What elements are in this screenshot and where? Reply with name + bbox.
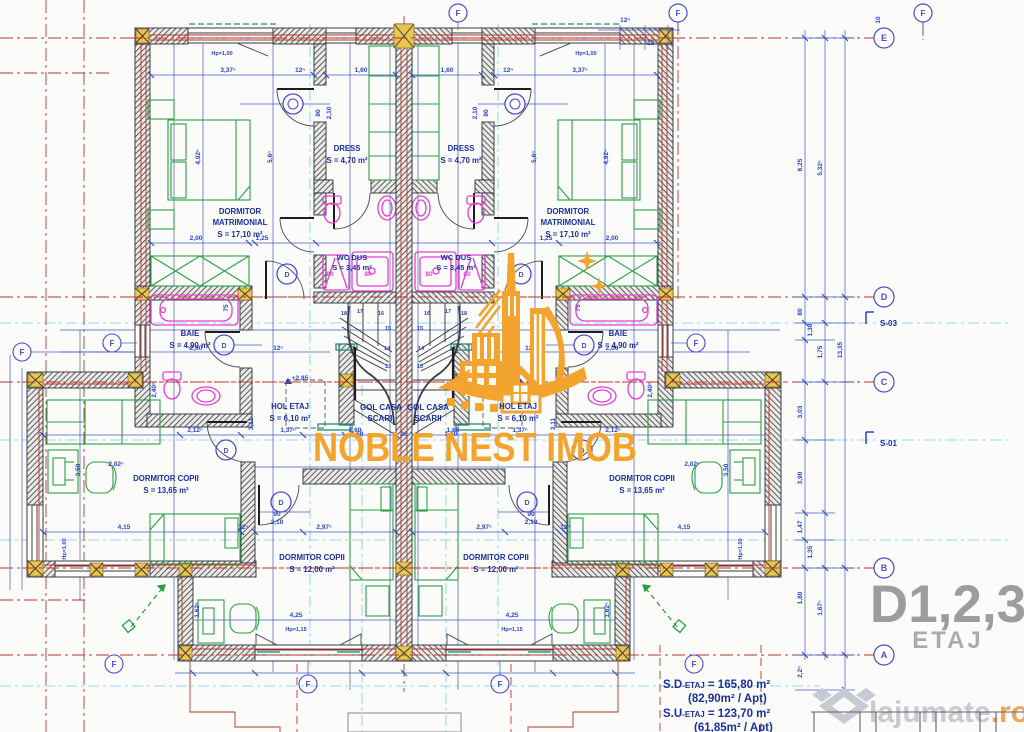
svg-text:1,62ⁿ: 1,62ⁿ — [194, 602, 201, 618]
svg-text:80: 80 — [326, 271, 334, 278]
svg-text:S.D-ETAJ = 165,80 m²: S.D-ETAJ = 165,80 m² — [663, 679, 770, 691]
svg-text:MATRIMONIAL: MATRIMONIAL — [213, 218, 268, 227]
svg-text:DORMITOR COPII: DORMITOR COPII — [279, 553, 345, 562]
svg-text:12ⁿ: 12ⁿ — [503, 67, 513, 74]
svg-text:S = 4,90 m²: S = 4,90 m² — [598, 341, 639, 350]
svg-text:15: 15 — [385, 326, 391, 332]
svg-text:13: 13 — [417, 364, 423, 370]
svg-text:E: E — [881, 33, 887, 43]
svg-text:1,60: 1,60 — [441, 67, 454, 74]
svg-text:BAIE: BAIE — [609, 329, 628, 338]
svg-text:C: C — [881, 377, 888, 387]
svg-text:DRESS: DRESS — [448, 144, 475, 153]
svg-text:S = 3,45 m²: S = 3,45 m² — [332, 263, 372, 272]
svg-text:S = 17,10 m²: S = 17,10 m² — [217, 230, 263, 239]
svg-text:D1,2,3: D1,2,3 — [870, 575, 1024, 634]
svg-text:D: D — [881, 292, 888, 302]
svg-text:S.U-ETAJ = 123,70 m²: S.U-ETAJ = 123,70 m² — [663, 708, 770, 720]
svg-text:(61,85m² / Apt): (61,85m² / Apt) — [694, 722, 773, 732]
svg-text:F: F — [112, 660, 117, 669]
svg-text:17: 17 — [357, 309, 363, 315]
svg-text:D: D — [223, 448, 228, 455]
svg-text:S = 4,70 m²: S = 4,70 m² — [441, 156, 482, 165]
svg-text:F: F — [498, 680, 503, 689]
svg-text:4,92ⁿ: 4,92ⁿ — [603, 149, 610, 165]
svg-text:F: F — [456, 9, 461, 18]
svg-text:3,11: 3,11 — [248, 417, 255, 430]
svg-text:1,38: 1,38 — [807, 323, 814, 336]
svg-text:NOBLE NEST IMOB: NOBLE NEST IMOB — [313, 424, 637, 470]
svg-text:12ⁿ: 12ⁿ — [560, 524, 570, 531]
svg-text:17: 17 — [445, 309, 451, 315]
svg-text:13: 13 — [385, 364, 391, 370]
svg-text:1,47: 1,47 — [797, 520, 804, 533]
svg-text:1,35: 1,35 — [807, 545, 814, 558]
svg-text:D: D — [221, 343, 226, 350]
svg-text:S = 13,65 m²: S = 13,65 m² — [619, 486, 665, 495]
svg-text:75: 75 — [223, 304, 230, 312]
svg-text:DORMITOR COPII: DORMITOR COPII — [133, 474, 199, 483]
svg-text:2,40ⁿ: 2,40ⁿ — [151, 382, 158, 398]
svg-text:2,10: 2,10 — [271, 519, 284, 526]
svg-text:5,6ⁿ: 5,6ⁿ — [531, 151, 538, 163]
svg-text:Hp=1,00: Hp=1,00 — [62, 538, 68, 559]
svg-text:Hp=1,00: Hp=1,00 — [738, 538, 744, 559]
svg-text:2,02ⁿ: 2,02ⁿ — [108, 461, 124, 468]
svg-text:D: D — [278, 500, 283, 507]
svg-text:1,60: 1,60 — [355, 67, 368, 74]
svg-text:HOL ETAJ: HOL ETAJ — [271, 402, 309, 411]
svg-text:S = 4,90 m²: S = 4,90 m² — [170, 341, 211, 350]
svg-text:Hp=1,00: Hp=1,00 — [211, 51, 232, 57]
svg-text:S-03: S-03 — [880, 319, 897, 328]
svg-text:GOL CASA: GOL CASA — [360, 403, 402, 412]
svg-text:SCARII: SCARII — [367, 414, 394, 423]
svg-text:3,37ⁿ: 3,37ⁿ — [220, 67, 236, 74]
svg-text:5,6ⁿ: 5,6ⁿ — [267, 151, 274, 163]
svg-text:1,80: 1,80 — [797, 591, 804, 604]
svg-text:4,25: 4,25 — [290, 612, 303, 619]
svg-text:2,00: 2,00 — [606, 235, 619, 242]
svg-text:2,02ⁿ: 2,02ⁿ — [684, 461, 700, 468]
svg-text:3,37ⁿ: 3,37ⁿ — [572, 67, 588, 74]
svg-text:3,03: 3,03 — [797, 405, 804, 418]
svg-text:3,90: 3,90 — [797, 471, 804, 484]
svg-text:DORMITOR COPII: DORMITOR COPII — [609, 474, 675, 483]
svg-text:S = 12,00 m²: S = 12,00 m² — [289, 565, 335, 574]
svg-text:80: 80 — [364, 271, 372, 278]
svg-text:D: D — [581, 343, 586, 350]
svg-text:12ⁿ: 12ⁿ — [273, 345, 283, 352]
svg-text:B: B — [881, 563, 888, 573]
svg-text:16: 16 — [424, 311, 430, 317]
svg-text:A: A — [881, 650, 888, 660]
svg-text:80: 80 — [425, 271, 433, 278]
svg-text:S = 13,65 m²: S = 13,65 m² — [143, 486, 189, 495]
svg-text:D: D — [518, 272, 523, 279]
svg-text:14: 14 — [384, 346, 391, 352]
svg-text:80: 80 — [483, 109, 490, 117]
svg-text:DORMITOR: DORMITOR — [547, 207, 590, 216]
svg-text:S = 3,45 m²: S = 3,45 m² — [436, 263, 476, 272]
svg-text:12ⁿ: 12ⁿ — [295, 67, 305, 74]
svg-text:4,25: 4,25 — [506, 612, 519, 619]
svg-text:(82,90m² / Apt): (82,90m² / Apt) — [688, 693, 767, 705]
svg-text:WC DUS: WC DUS — [441, 253, 471, 262]
svg-text:Hp=1,15: Hp=1,15 — [285, 627, 306, 633]
svg-text:WC DUS: WC DUS — [337, 253, 367, 262]
svg-text:2,12ⁿ: 2,12ⁿ — [187, 427, 203, 434]
svg-text:F: F — [921, 9, 926, 18]
svg-text:18: 18 — [341, 311, 347, 317]
svg-text:14: 14 — [418, 346, 425, 352]
svg-text:DRESS: DRESS — [334, 144, 361, 153]
svg-text:12ⁿ: 12ⁿ — [647, 40, 657, 47]
svg-text:HOL ETAJ: HOL ETAJ — [499, 402, 537, 411]
svg-text:75: 75 — [575, 304, 582, 312]
svg-text:Hp=1,15: Hp=1,15 — [501, 627, 522, 633]
svg-text:5,32ⁿ: 5,32ⁿ — [817, 160, 824, 176]
svg-text:S-01: S-01 — [880, 439, 897, 448]
svg-text:1,37ⁿ: 1,37ⁿ — [280, 427, 296, 434]
svg-text:1,75: 1,75 — [817, 345, 824, 358]
svg-text:DORMITOR COPII: DORMITOR COPII — [463, 553, 529, 562]
svg-text:F: F — [306, 680, 311, 689]
svg-text:D: D — [524, 500, 529, 507]
svg-text:2,00: 2,00 — [190, 235, 203, 242]
svg-text:4,15: 4,15 — [118, 524, 131, 531]
svg-text:DORMITOR: DORMITOR — [219, 207, 262, 216]
svg-text:4,92ⁿ: 4,92ⁿ — [195, 149, 202, 165]
svg-text:GOL CASA: GOL CASA — [407, 403, 449, 412]
svg-text:4,15: 4,15 — [678, 524, 691, 531]
svg-text:3,50: 3,50 — [75, 463, 82, 476]
svg-text:80: 80 — [315, 109, 322, 117]
svg-text:2,10: 2,10 — [525, 519, 538, 526]
svg-text:18: 18 — [461, 311, 467, 317]
svg-text:SCARII: SCARII — [414, 414, 441, 423]
svg-text:6,25: 6,25 — [797, 158, 804, 171]
svg-text:S = 17,10 m²: S = 17,10 m² — [545, 230, 591, 239]
svg-text:S = 6,10 m²: S = 6,10 m² — [270, 414, 311, 423]
svg-text:+2,85: +2,85 — [292, 375, 309, 382]
svg-text:15: 15 — [417, 326, 423, 332]
svg-text:F: F — [110, 339, 115, 348]
svg-text:12ⁿ: 12ⁿ — [620, 17, 630, 24]
svg-text:2,97ⁿ: 2,97ⁿ — [316, 524, 332, 531]
svg-text:S = 6,10 m²: S = 6,10 m² — [498, 414, 539, 423]
svg-text:S = 4,70 m²: S = 4,70 m² — [327, 156, 368, 165]
svg-text:80: 80 — [463, 271, 471, 278]
svg-text:10: 10 — [875, 16, 882, 24]
svg-text:2,2ⁿ: 2,2ⁿ — [797, 666, 804, 678]
svg-text:MATRIMONIAL: MATRIMONIAL — [541, 218, 596, 227]
svg-text:F: F — [694, 339, 699, 348]
svg-text:80: 80 — [797, 308, 804, 316]
svg-text:13,35: 13,35 — [837, 341, 844, 358]
svg-text:1,67ⁿ: 1,67ⁿ — [817, 600, 824, 616]
svg-text:F: F — [676, 9, 681, 18]
svg-text:BAIE: BAIE — [181, 329, 200, 338]
svg-text:ETAJ: ETAJ — [912, 627, 984, 654]
svg-text:1,62ⁿ: 1,62ⁿ — [604, 602, 611, 618]
svg-text:2,40ⁿ: 2,40ⁿ — [647, 382, 654, 398]
svg-text:F: F — [692, 660, 697, 669]
svg-text:F: F — [20, 348, 25, 357]
svg-text:2,10: 2,10 — [472, 106, 479, 119]
svg-text:2,10: 2,10 — [326, 106, 333, 119]
svg-text:D: D — [284, 272, 289, 279]
svg-text:3,50: 3,50 — [723, 463, 730, 476]
svg-text:2,97ⁿ: 2,97ⁿ — [476, 524, 492, 531]
svg-text:Hp=1,00: Hp=1,00 — [575, 51, 596, 57]
svg-text:S = 12,00 m²: S = 12,00 m² — [473, 565, 519, 574]
svg-text:16: 16 — [378, 311, 384, 317]
